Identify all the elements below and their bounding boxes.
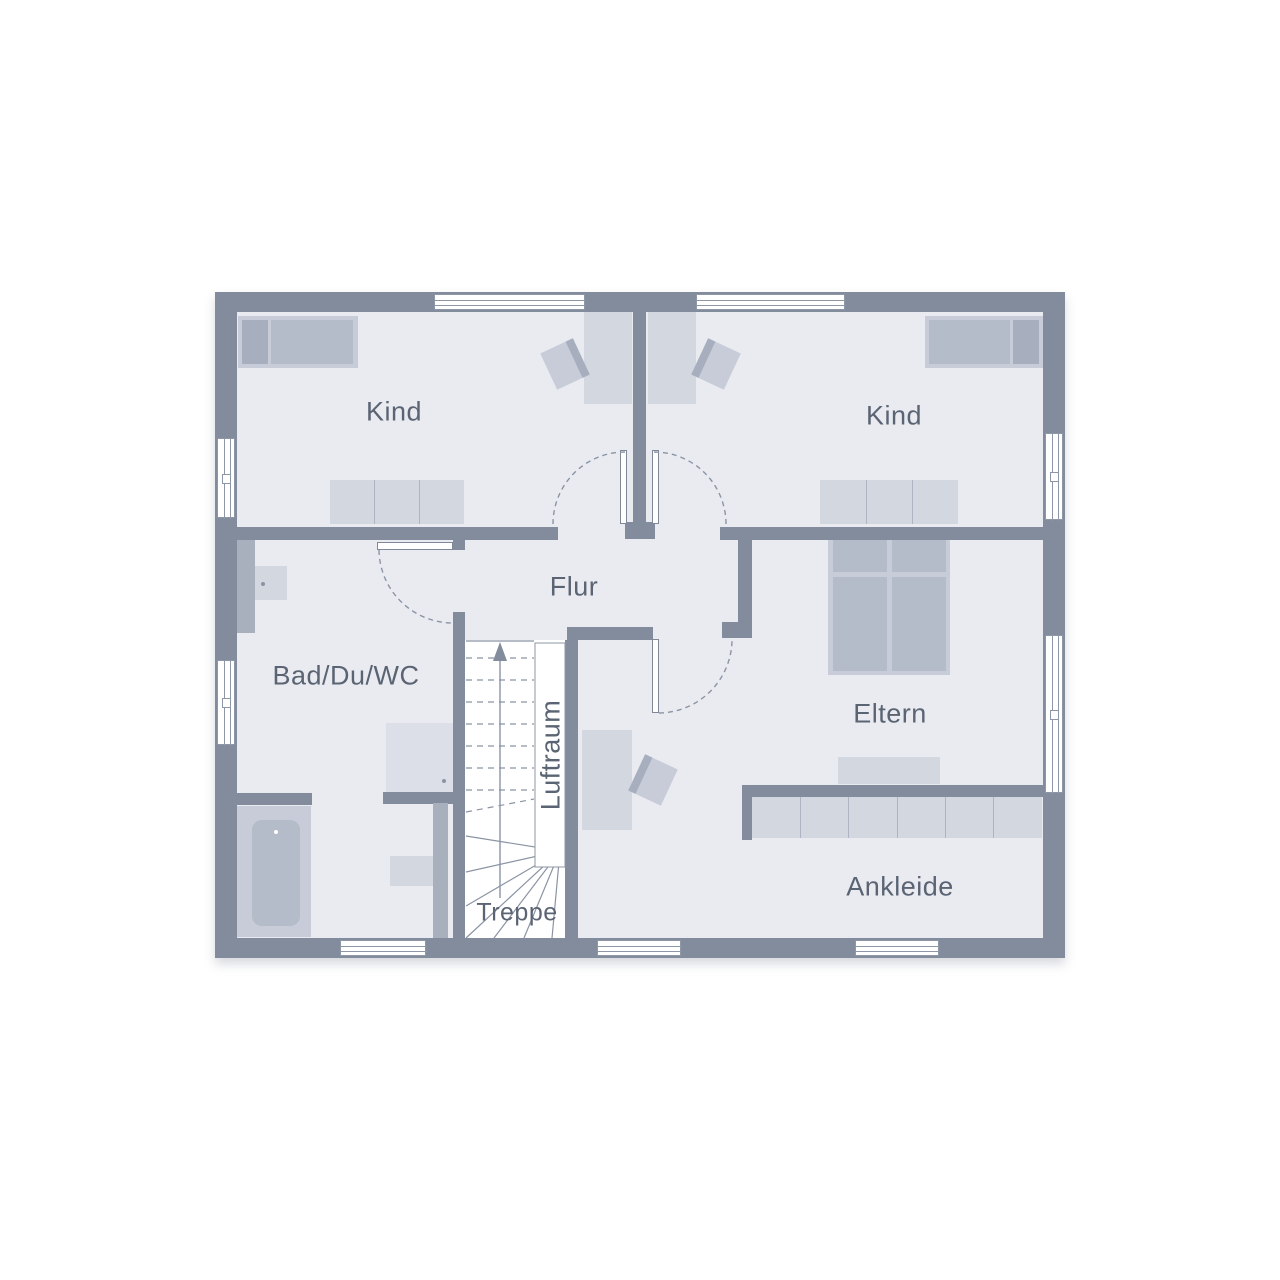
wall-eltern-ankleide (742, 785, 1043, 797)
floor-plan-page: Kind Kind Flur Bad/Du/WC Eltern Ankleide… (0, 0, 1280, 1280)
room-label-kind-right: Kind (866, 401, 922, 432)
eltern-bed-pillow-l (833, 539, 887, 572)
kindright-bed-mattress (929, 320, 1010, 364)
window-bottom-eltern-frame-line (598, 951, 682, 952)
exterior-wall-top (215, 292, 1065, 312)
eltern-bed-mattress-l (833, 577, 887, 671)
window-top-kindleft-frame-line (435, 300, 586, 301)
partition-bad-install (237, 540, 255, 633)
wall-kindright-eltern (720, 527, 1043, 540)
kindleft-dresser-divider (374, 480, 375, 524)
kindleft-desk (584, 312, 632, 404)
eltern-dresser (838, 757, 940, 784)
wall-flur-eltern (738, 540, 752, 623)
window-bottom-ankleide-frame-line (856, 951, 940, 952)
eltern-desk (582, 730, 632, 830)
wall-kindleft-flur (237, 527, 558, 540)
kindleft-dresser (330, 480, 464, 524)
window-bottom-eltern-frame-line (598, 946, 682, 947)
bad-wc (390, 856, 433, 886)
bad-shower-drain-dot (442, 779, 446, 783)
window-bottom-bad (340, 940, 426, 956)
floor-plan: Kind Kind Flur Bad/Du/WC Eltern Ankleide… (0, 0, 1280, 1280)
bad-tub-inner (252, 820, 300, 926)
kindright-dresser-divider (912, 480, 913, 524)
kindright-desk (648, 312, 696, 404)
window-bottom-ankleide-frame-line (856, 946, 940, 947)
wall-ankleide-stub (742, 785, 752, 840)
wall-luftraum-right (565, 640, 578, 938)
door-leaf-bad (377, 542, 453, 550)
kindright-dresser-divider (866, 480, 867, 524)
partition-wc (433, 803, 448, 938)
window-right-eltern (1045, 635, 1063, 793)
ankleide-wardrobe (752, 797, 1042, 838)
eltern-bed-mattress-r (892, 577, 946, 671)
window-right-kind (1045, 433, 1063, 520)
window-top-kindleft-frame-line (435, 305, 586, 306)
window-left-kind (217, 438, 235, 518)
window-right-kind-handle (1050, 472, 1059, 482)
window-left-kind-handle (222, 474, 231, 484)
window-top-kindleft (434, 294, 585, 310)
room-label-flur: Flur (550, 572, 599, 603)
wall-kids-divider-cap (625, 522, 655, 539)
ankleide-wardrobe-divider (897, 797, 898, 838)
wall-tub-nook (236, 793, 312, 805)
window-bottom-eltern (597, 940, 681, 956)
window-bottom-bad-frame-line (341, 946, 427, 947)
window-right-eltern-handle (1050, 710, 1059, 720)
ankleide-wardrobe-divider (993, 797, 994, 838)
door-leaf-eltern (652, 639, 659, 713)
kindleft-bed-mattress (271, 320, 353, 364)
ankleide-wardrobe-divider (945, 797, 946, 838)
window-bottom-bad-frame-line (341, 951, 427, 952)
wall-flur-eltern-cap (722, 622, 752, 638)
wall-stair-top (567, 627, 653, 640)
kindright-bed-pillow (1013, 320, 1039, 364)
window-top-kindright (696, 294, 845, 310)
bad-sink-faucet-dot (261, 582, 265, 586)
wall-bad-right (453, 612, 465, 938)
ankleide-wardrobe-divider (800, 797, 801, 838)
room-label-eltern: Eltern (853, 699, 927, 730)
door-leaf-kind-left (620, 450, 627, 524)
kindleft-bed-pillow (242, 320, 268, 364)
room-label-bad: Bad/Du/WC (272, 661, 419, 692)
window-left-bad (217, 660, 235, 745)
room-label-kind-left: Kind (366, 397, 422, 428)
plan-geometry (0, 0, 1280, 1280)
window-bottom-ankleide (855, 940, 939, 956)
room-label-luftraum: Luftraum (536, 700, 567, 811)
kindleft-dresser-divider (419, 480, 420, 524)
room-label-ankleide: Ankleide (846, 872, 954, 903)
wall-bad-door-jamb (453, 540, 465, 550)
ankleide-wardrobe-divider (848, 797, 849, 838)
room-label-treppe: Treppe (476, 899, 557, 928)
door-leaf-kind-right (652, 450, 659, 524)
window-top-kindright-frame-line (697, 300, 846, 301)
bad-tub-drain-dot (274, 830, 278, 834)
window-left-bad-handle (222, 698, 231, 708)
wall-kids-divider (633, 312, 646, 522)
exterior-wall-right (1043, 292, 1065, 958)
kindright-dresser (820, 480, 958, 524)
window-top-kindright-frame-line (697, 305, 846, 306)
eltern-bed-pillow-r (892, 539, 946, 572)
bad-sink (255, 566, 287, 600)
exterior-wall-left (215, 292, 237, 958)
